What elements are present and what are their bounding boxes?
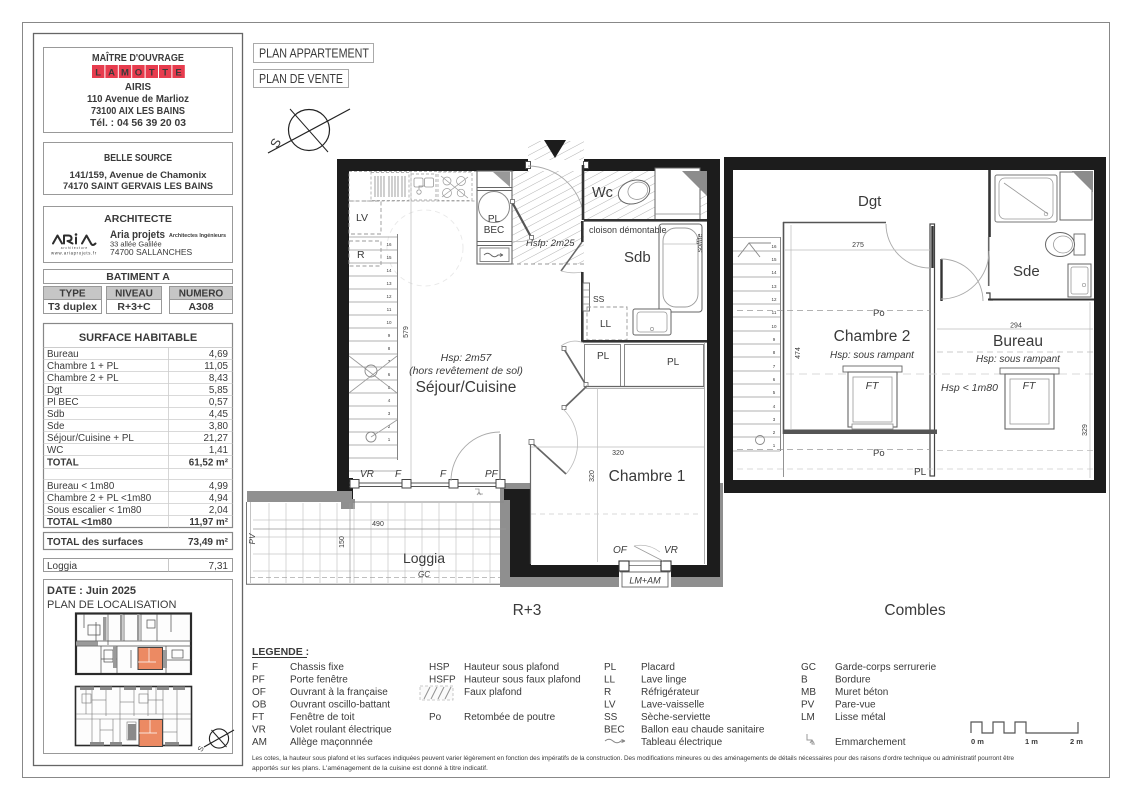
svg-text:8,43: 8,43 [209,373,229,384]
svg-text:73100 AIX LES BAINS: 73100 AIX LES BAINS [91,106,185,117]
svg-text:HSP: HSP [429,662,450,673]
svg-text:AIRIS: AIRIS [125,82,152,93]
svg-text:PLAN DE LOCALISATION: PLAN DE LOCALISATION [47,599,176,611]
svg-text:MB: MB [801,687,816,698]
svg-text:R: R [357,249,365,261]
svg-text:Lisse métal: Lisse métal [835,712,886,723]
svg-text:2,04: 2,04 [209,505,229,516]
svg-text:579: 579 [403,326,410,338]
svg-text:Lave-vaisselle: Lave-vaisselle [641,700,705,711]
svg-text:NIVEAU: NIVEAU [115,289,153,300]
svg-text:11: 11 [387,307,392,312]
svg-text:Sdb: Sdb [624,249,651,266]
svg-text:TYPE: TYPE [59,289,85,300]
svg-text:Pl BEC: Pl BEC [47,397,79,408]
svg-text:4,45: 4,45 [209,409,229,420]
svg-text:Emmarchement: Emmarchement [835,737,906,748]
svg-text:Les cotes, la hauteur sous pla: Les cotes, la hauteur sous plafond et le… [252,755,1014,762]
svg-text:Volet roulant électrique: Volet roulant électrique [290,725,392,736]
svg-text:320: 320 [612,450,624,457]
svg-text:Bureau: Bureau [47,349,79,360]
svg-text:Chambre 2: Chambre 2 [834,328,911,345]
svg-text:Séjour/Cuisine: Séjour/Cuisine [416,379,517,396]
svg-text:Sèche-serviette: Sèche-serviette [641,712,711,723]
svg-text:15: 15 [771,257,777,262]
svg-text:Chambre 1 + PL: Chambre 1 + PL [47,361,119,372]
svg-text:PL: PL [604,662,617,673]
svg-text:E: E [175,68,181,79]
svg-text:cloison démontable: cloison démontable [589,225,667,235]
svg-text:Sde: Sde [1013,263,1040,280]
svg-text:13: 13 [771,284,777,289]
svg-text:Hauteur sous plafond: Hauteur sous plafond [464,662,559,673]
svg-text:TOTAL des surfaces: TOTAL des surfaces [47,537,144,548]
svg-text:PV: PV [801,700,815,711]
svg-text:Architectes Ingénieurs: Architectes Ingénieurs [169,233,226,239]
svg-text:329: 329 [1082,424,1089,436]
svg-text:PLAN DE VENTE: PLAN DE VENTE [259,71,343,86]
svg-text:DATE : Juin 2025: DATE : Juin 2025 [47,585,136,597]
svg-text:Ballon eau chaude sanitaire: Ballon eau chaude sanitaire [641,725,765,736]
svg-text:R+3+C: R+3+C [117,301,151,313]
svg-text:OF: OF [252,687,266,698]
svg-text:320: 320 [589,470,596,482]
svg-text:Ouvrant à la française: Ouvrant à la française [290,687,388,698]
svg-text:BEC: BEC [604,725,625,736]
svg-text:GC: GC [801,662,816,673]
svg-text:R+3: R+3 [513,602,542,619]
svg-text:12: 12 [771,297,777,302]
svg-text:AM: AM [252,737,267,748]
svg-text:MAÎTRE D'OUVRAGE: MAÎTRE D'OUVRAGE [92,51,184,64]
svg-text:R: R [604,687,611,698]
svg-text:14: 14 [386,268,392,273]
svg-text:15: 15 [386,255,392,260]
svg-text:PV: PV [248,533,257,544]
svg-text:T3 duplex: T3 duplex [48,301,97,313]
svg-text:Chambre 1: Chambre 1 [609,468,686,485]
svg-text:1,41: 1,41 [209,445,228,456]
svg-text:A: A [108,68,115,79]
svg-text:Bordure: Bordure [835,675,871,686]
svg-text:apportés sur les plans. L'amén: apportés sur les plans. L'aménagement de… [252,765,488,772]
svg-text:BATIMENT A: BATIMENT A [106,271,170,283]
svg-text:Tableau électrique: Tableau électrique [641,737,723,748]
svg-text:PL: PL [667,357,680,368]
svg-text:Po: Po [429,712,442,723]
svg-text:B: B [801,675,808,686]
svg-text:Hsp: sous rampant: Hsp: sous rampant [976,354,1061,365]
svg-text:Retombée de poutre: Retombée de poutre [464,712,556,723]
svg-text:5,85: 5,85 [209,385,229,396]
svg-text:BELLE SOURCE: BELLE SOURCE [104,152,172,164]
svg-text:PF: PF [252,675,265,686]
svg-text:LL: LL [600,319,612,330]
svg-text:10: 10 [771,324,777,329]
svg-text:O: O [135,68,142,79]
svg-text:LL: LL [604,675,616,686]
svg-text:PL: PL [914,467,927,478]
svg-text:FT: FT [252,712,264,723]
svg-text:4,94: 4,94 [209,493,229,504]
svg-text:SS: SS [593,294,605,304]
svg-text:21,27: 21,27 [203,433,228,444]
svg-text:Pare-vue: Pare-vue [835,700,876,711]
svg-text:LV: LV [604,700,616,711]
svg-text:Bureau: Bureau [993,333,1043,350]
svg-text:PLAN APPARTEMENT: PLAN APPARTEMENT [259,46,369,61]
svg-text:Wc: Wc [592,185,613,201]
svg-text:TOTAL: TOTAL [47,458,79,469]
svg-text:11,05: 11,05 [204,361,228,372]
svg-text:Allège maçonnnée: Allège maçonnnée [290,737,373,748]
svg-text:Séjour/Cuisine + PL: Séjour/Cuisine + PL [47,433,134,444]
svg-text:Faux plafond: Faux plafond [464,687,522,698]
svg-text:HSFP: HSFP [429,675,456,686]
svg-text:Combles: Combles [884,602,945,619]
svg-text:Loggia: Loggia [403,550,445,566]
svg-text:VR: VR [252,725,266,736]
svg-text:Bureau < 1m80: Bureau < 1m80 [47,481,115,492]
svg-text:110 Avenue de Marlioz: 110 Avenue de Marlioz [87,94,189,105]
svg-text:T: T [162,68,168,79]
svg-text:14: 14 [771,270,777,275]
svg-text:SURFACE HABITABLE: SURFACE HABITABLE [79,332,197,344]
svg-text:1 m: 1 m [1025,737,1038,746]
svg-text:Hsp: sous rampant: Hsp: sous rampant [830,350,915,361]
svg-text:10: 10 [386,320,392,325]
svg-text:16: 16 [771,244,777,249]
svg-text:LV: LV [356,212,368,224]
svg-text:Ouvrant oscillo-battant: Ouvrant oscillo-battant [290,700,390,711]
svg-text:Chambre 2 + PL <1m80: Chambre 2 + PL <1m80 [47,493,152,504]
svg-text:61,52 m²: 61,52 m² [189,458,229,469]
svg-text:OF: OF [613,545,628,556]
svg-text:FT: FT [1023,380,1037,392]
svg-text:Hsp < 1m80: Hsp < 1m80 [941,382,998,394]
svg-text:Po: Po [873,448,885,459]
svg-text:7,31: 7,31 [209,561,229,572]
svg-text:Porte fenêtre: Porte fenêtre [290,675,348,686]
svg-text:Tél. : 04 56 39 20 03: Tél. : 04 56 39 20 03 [90,118,187,129]
svg-text:Muret béton: Muret béton [835,687,888,698]
svg-text:A308: A308 [188,301,213,313]
svg-text:OB: OB [252,700,267,711]
svg-text:NUMERO: NUMERO [179,289,224,300]
svg-text:WC: WC [47,445,63,456]
svg-text:0 m: 0 m [971,737,984,746]
svg-text:12: 12 [386,294,392,299]
svg-text:74170 SAINT GERVAIS LES BAINS: 74170 SAINT GERVAIS LES BAINS [63,181,213,191]
svg-text:LM+AM: LM+AM [629,576,661,586]
svg-text:F: F [440,469,447,480]
svg-text:Garde-corps serrurerie: Garde-corps serrurerie [835,662,937,673]
svg-text:4,69: 4,69 [209,349,228,360]
svg-text:490: 490 [372,521,384,528]
svg-text:PL: PL [488,214,501,225]
svg-text:Po: Po [873,308,885,319]
svg-text:Lave linge: Lave linge [641,675,687,686]
svg-text:Sdb: Sdb [47,409,65,420]
svg-text:3,80: 3,80 [209,421,229,432]
svg-text:Sous escalier < 1m80: Sous escalier < 1m80 [47,505,142,516]
svg-text:141/159, Avenue de Chamonix: 141/159, Avenue de Chamonix [70,170,208,180]
svg-text:LM: LM [801,712,815,723]
svg-text:Chambre 2 + PL: Chambre 2 + PL [47,373,119,384]
svg-text:Dgt: Dgt [47,385,63,396]
svg-text:13: 13 [386,281,392,286]
svg-text:www.ariaprojets.fr: www.ariaprojets.fr [51,251,97,256]
svg-text:Réfrigérateur: Réfrigérateur [641,687,700,698]
svg-text:soffite: soffite [697,234,704,253]
svg-text:T: T [149,68,155,79]
svg-text:a r c h i t e c t u r e: a r c h i t e c t u r e [61,246,88,250]
svg-text:BEC: BEC [484,225,505,236]
svg-text:FT: FT [866,380,880,392]
svg-text:73,49 m²: 73,49 m² [188,537,229,548]
svg-text:Placard: Placard [641,662,675,673]
svg-text:Hauteur sous faux plafond: Hauteur sous faux plafond [464,675,581,686]
svg-text:VR: VR [360,469,374,480]
svg-text:VR: VR [664,545,678,556]
svg-text:L: L [95,68,101,79]
svg-text:0,57: 0,57 [209,397,228,408]
svg-text:Loggia: Loggia [47,561,77,572]
svg-text:Chassis fixe: Chassis fixe [290,662,344,673]
svg-text:M: M [121,68,129,79]
svg-text:11,97 m²: 11,97 m² [189,517,228,528]
svg-text:16: 16 [386,242,392,247]
svg-text:Fenêtre de toit: Fenêtre de toit [290,712,355,723]
svg-text:Sde: Sde [47,421,65,432]
svg-text:F: F [395,469,402,480]
svg-text:GC: GC [418,570,430,579]
svg-text:(hors revêtement de sol): (hors revêtement de sol) [409,365,523,377]
svg-text:SS: SS [604,712,618,723]
svg-text:TOTAL <1m80: TOTAL <1m80 [47,517,113,528]
svg-text:150: 150 [339,536,346,548]
svg-text:PL: PL [597,351,610,362]
svg-text:275: 275 [852,242,864,249]
svg-text:474: 474 [795,347,802,359]
svg-text:ARCHITECTE: ARCHITECTE [104,213,172,225]
svg-text:LEGENDE :: LEGENDE : [252,646,309,658]
svg-text:4,99: 4,99 [209,481,228,492]
svg-text:Hsp: 2m57: Hsp: 2m57 [441,352,493,364]
svg-text:294: 294 [1010,323,1022,330]
svg-text:F: F [252,662,258,673]
svg-text:2 m: 2 m [1070,737,1083,746]
svg-text:74700 SALLANCHES: 74700 SALLANCHES [110,247,193,257]
svg-text:PF: PF [485,469,499,480]
svg-text:Dgt: Dgt [858,193,882,210]
